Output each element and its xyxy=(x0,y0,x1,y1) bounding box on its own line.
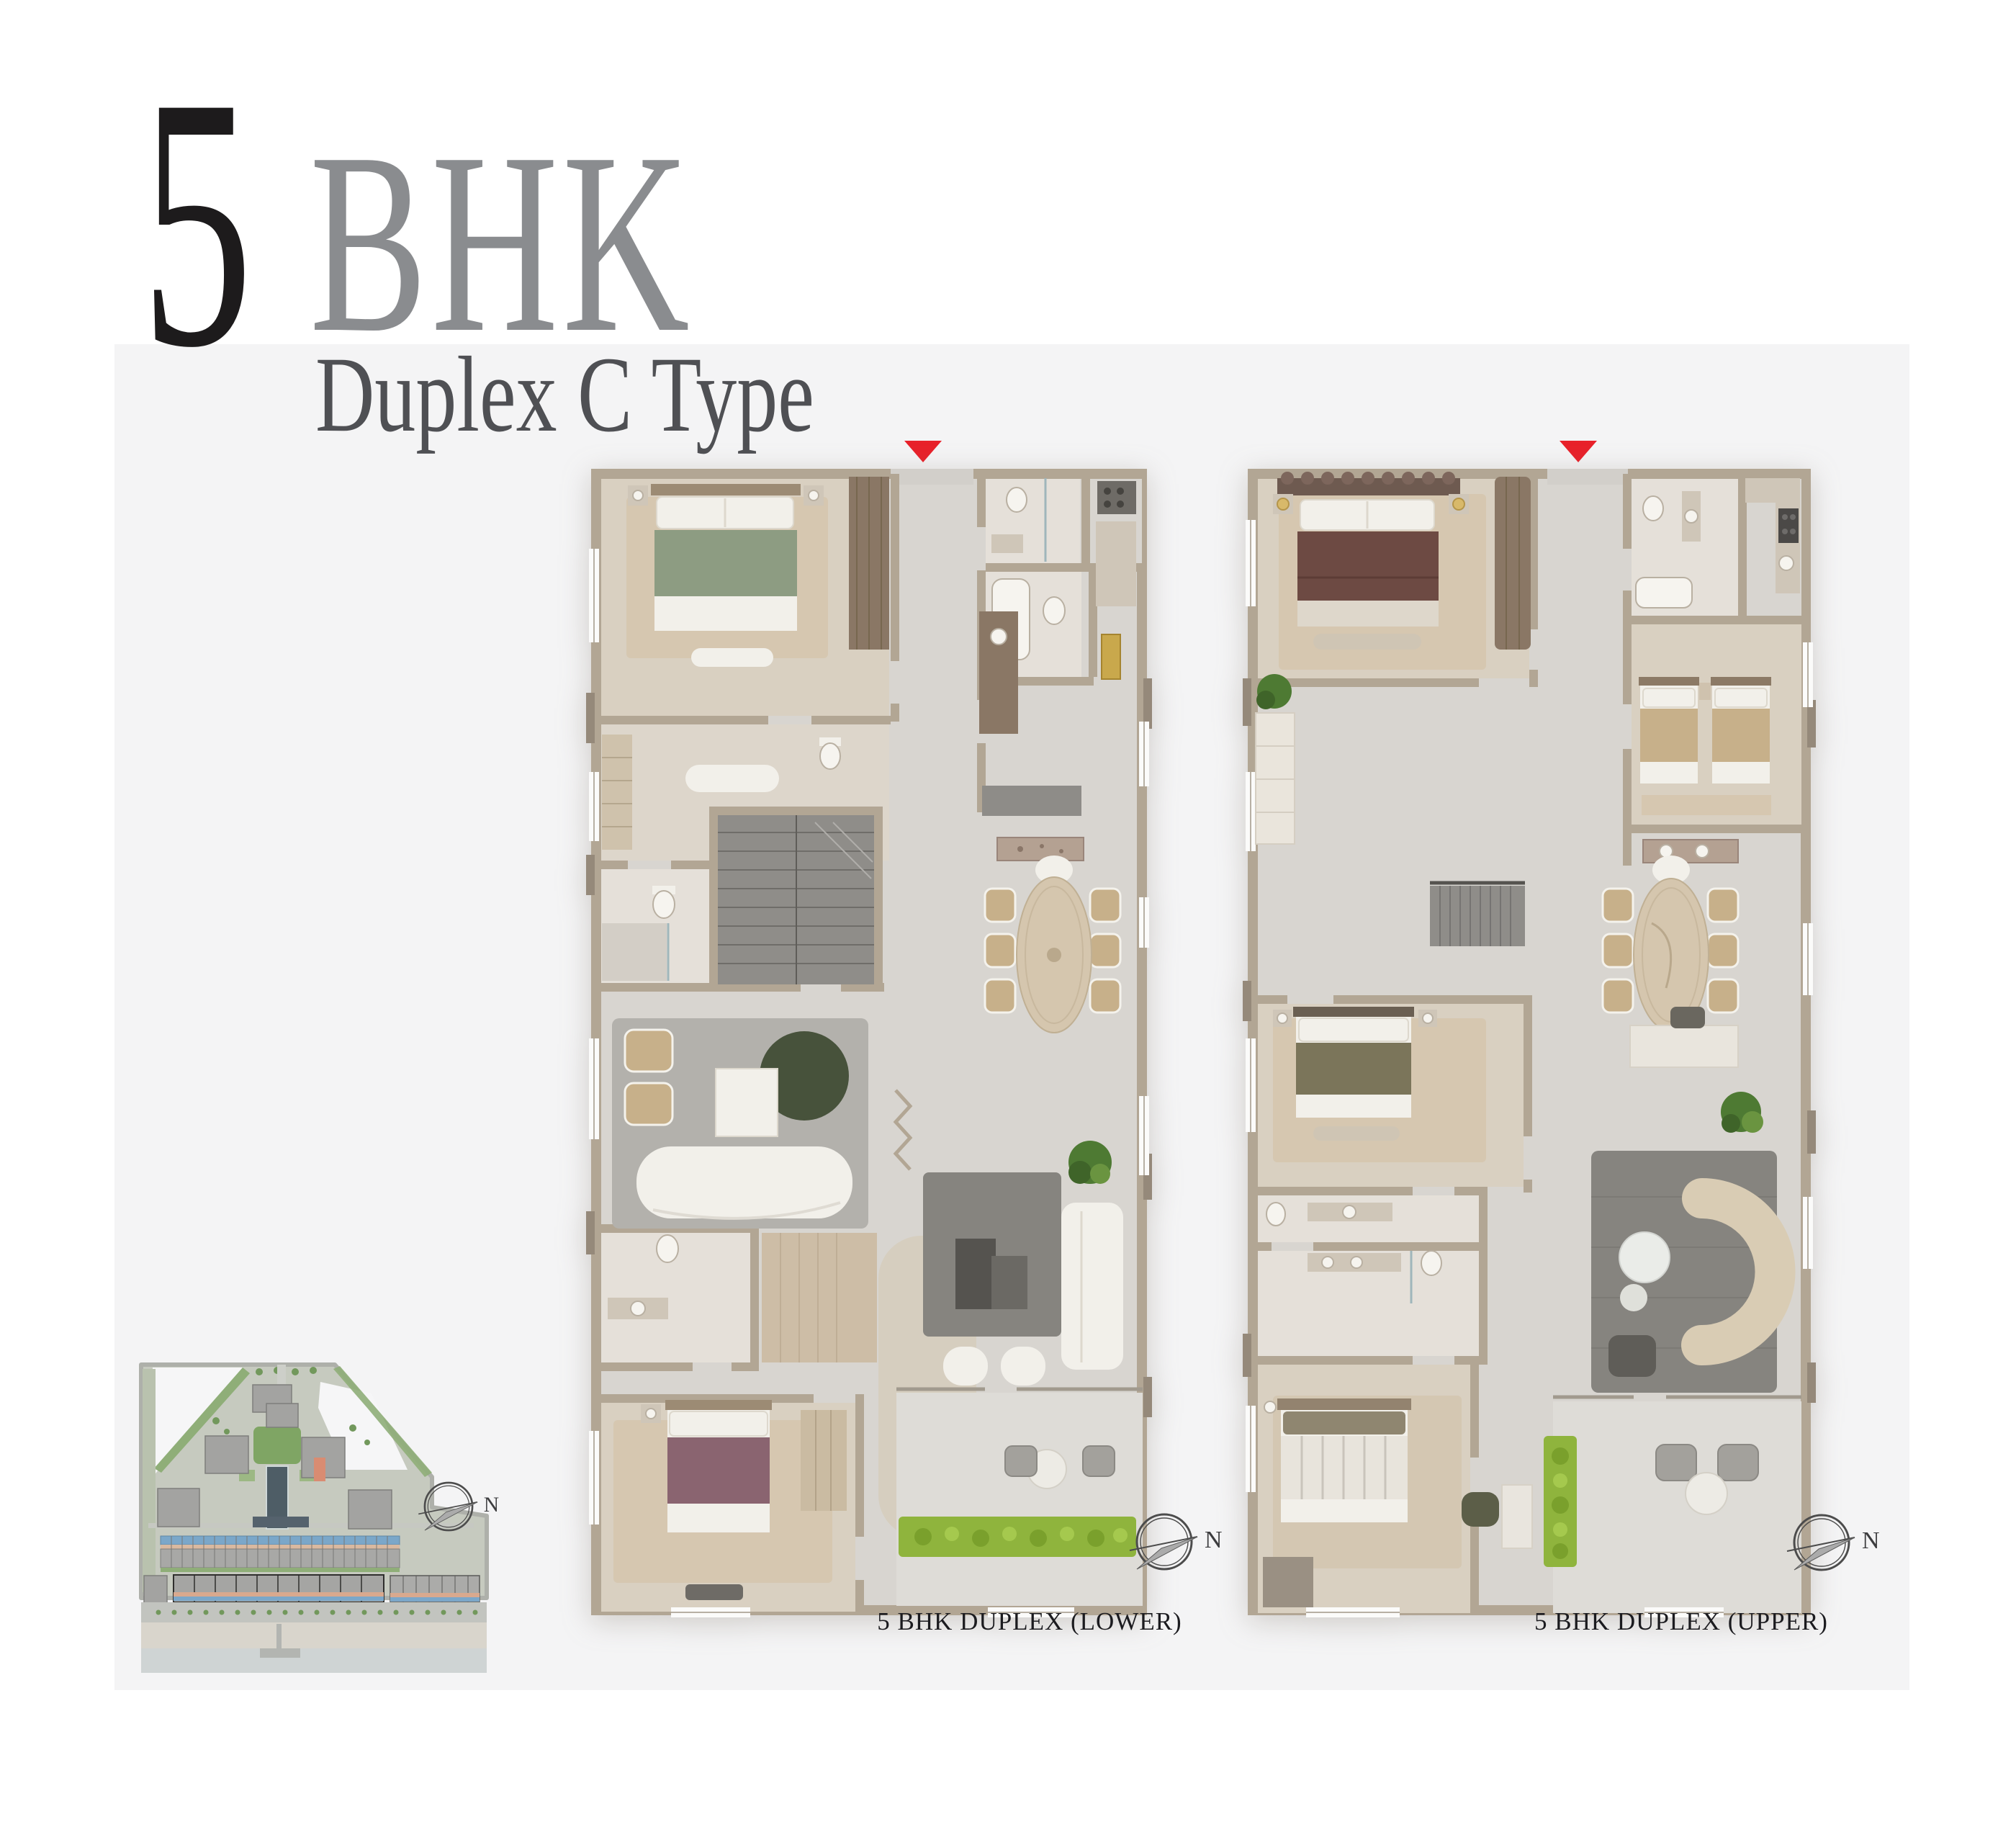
bed-blanket-maroon xyxy=(1297,531,1439,601)
title-number: 5 xyxy=(141,42,253,403)
console xyxy=(997,838,1084,861)
brochure-page: 5 BHK Duplex C Type xyxy=(0,0,2016,1832)
title-unit: BHK xyxy=(310,113,693,372)
floorplan-lower xyxy=(585,462,1153,1622)
bed-blanket-green xyxy=(654,530,797,596)
townhouse-row-2 xyxy=(174,1575,480,1602)
living-room xyxy=(612,1018,868,1229)
caption-upper: 5 BHK DUPLEX (UPPER) xyxy=(1534,1607,1828,1636)
caption-lower: 5 BHK DUPLEX (LOWER) xyxy=(877,1607,1182,1636)
wardrobe xyxy=(849,477,889,650)
bed-headboard xyxy=(651,484,801,495)
water xyxy=(141,1648,487,1673)
bedroom-2 xyxy=(613,1400,847,1600)
promenade-trees xyxy=(156,1610,478,1615)
promenade xyxy=(141,1602,487,1622)
upper-compass-icon: N xyxy=(1783,1508,1905,1577)
bed-blanket-olive xyxy=(1296,1043,1411,1095)
site-compass-icon: N xyxy=(415,1476,521,1537)
terrace-floor xyxy=(1553,1401,1801,1613)
bed-bench xyxy=(691,648,773,667)
north-label: N xyxy=(1862,1527,1880,1554)
bedroom-3 xyxy=(1273,1007,1486,1162)
sofa-l xyxy=(1061,1203,1123,1370)
townhouse-row-1 xyxy=(161,1536,400,1572)
balcony-floor xyxy=(896,1393,1143,1606)
entrance-opening xyxy=(1547,469,1628,485)
north-label: N xyxy=(484,1494,499,1517)
lower-compass-icon: N xyxy=(1125,1507,1248,1576)
floorplan-upper xyxy=(1241,462,1817,1622)
lift-door xyxy=(1102,634,1120,679)
vanity-console xyxy=(1643,840,1738,863)
entry-marker-lower-icon xyxy=(904,441,942,462)
bed-blanket-plum xyxy=(667,1437,770,1504)
entry-marker-upper-icon xyxy=(1560,441,1597,462)
staircase xyxy=(1430,883,1525,946)
highlighted-unit xyxy=(314,1458,325,1481)
beach xyxy=(141,1622,487,1648)
north-label: N xyxy=(1205,1527,1223,1553)
staircase xyxy=(718,815,874,984)
entrance-opening xyxy=(891,469,973,485)
title-subtitle: Duplex C Type xyxy=(315,341,814,449)
bedroom-1 xyxy=(626,484,828,667)
pier xyxy=(260,1648,300,1658)
